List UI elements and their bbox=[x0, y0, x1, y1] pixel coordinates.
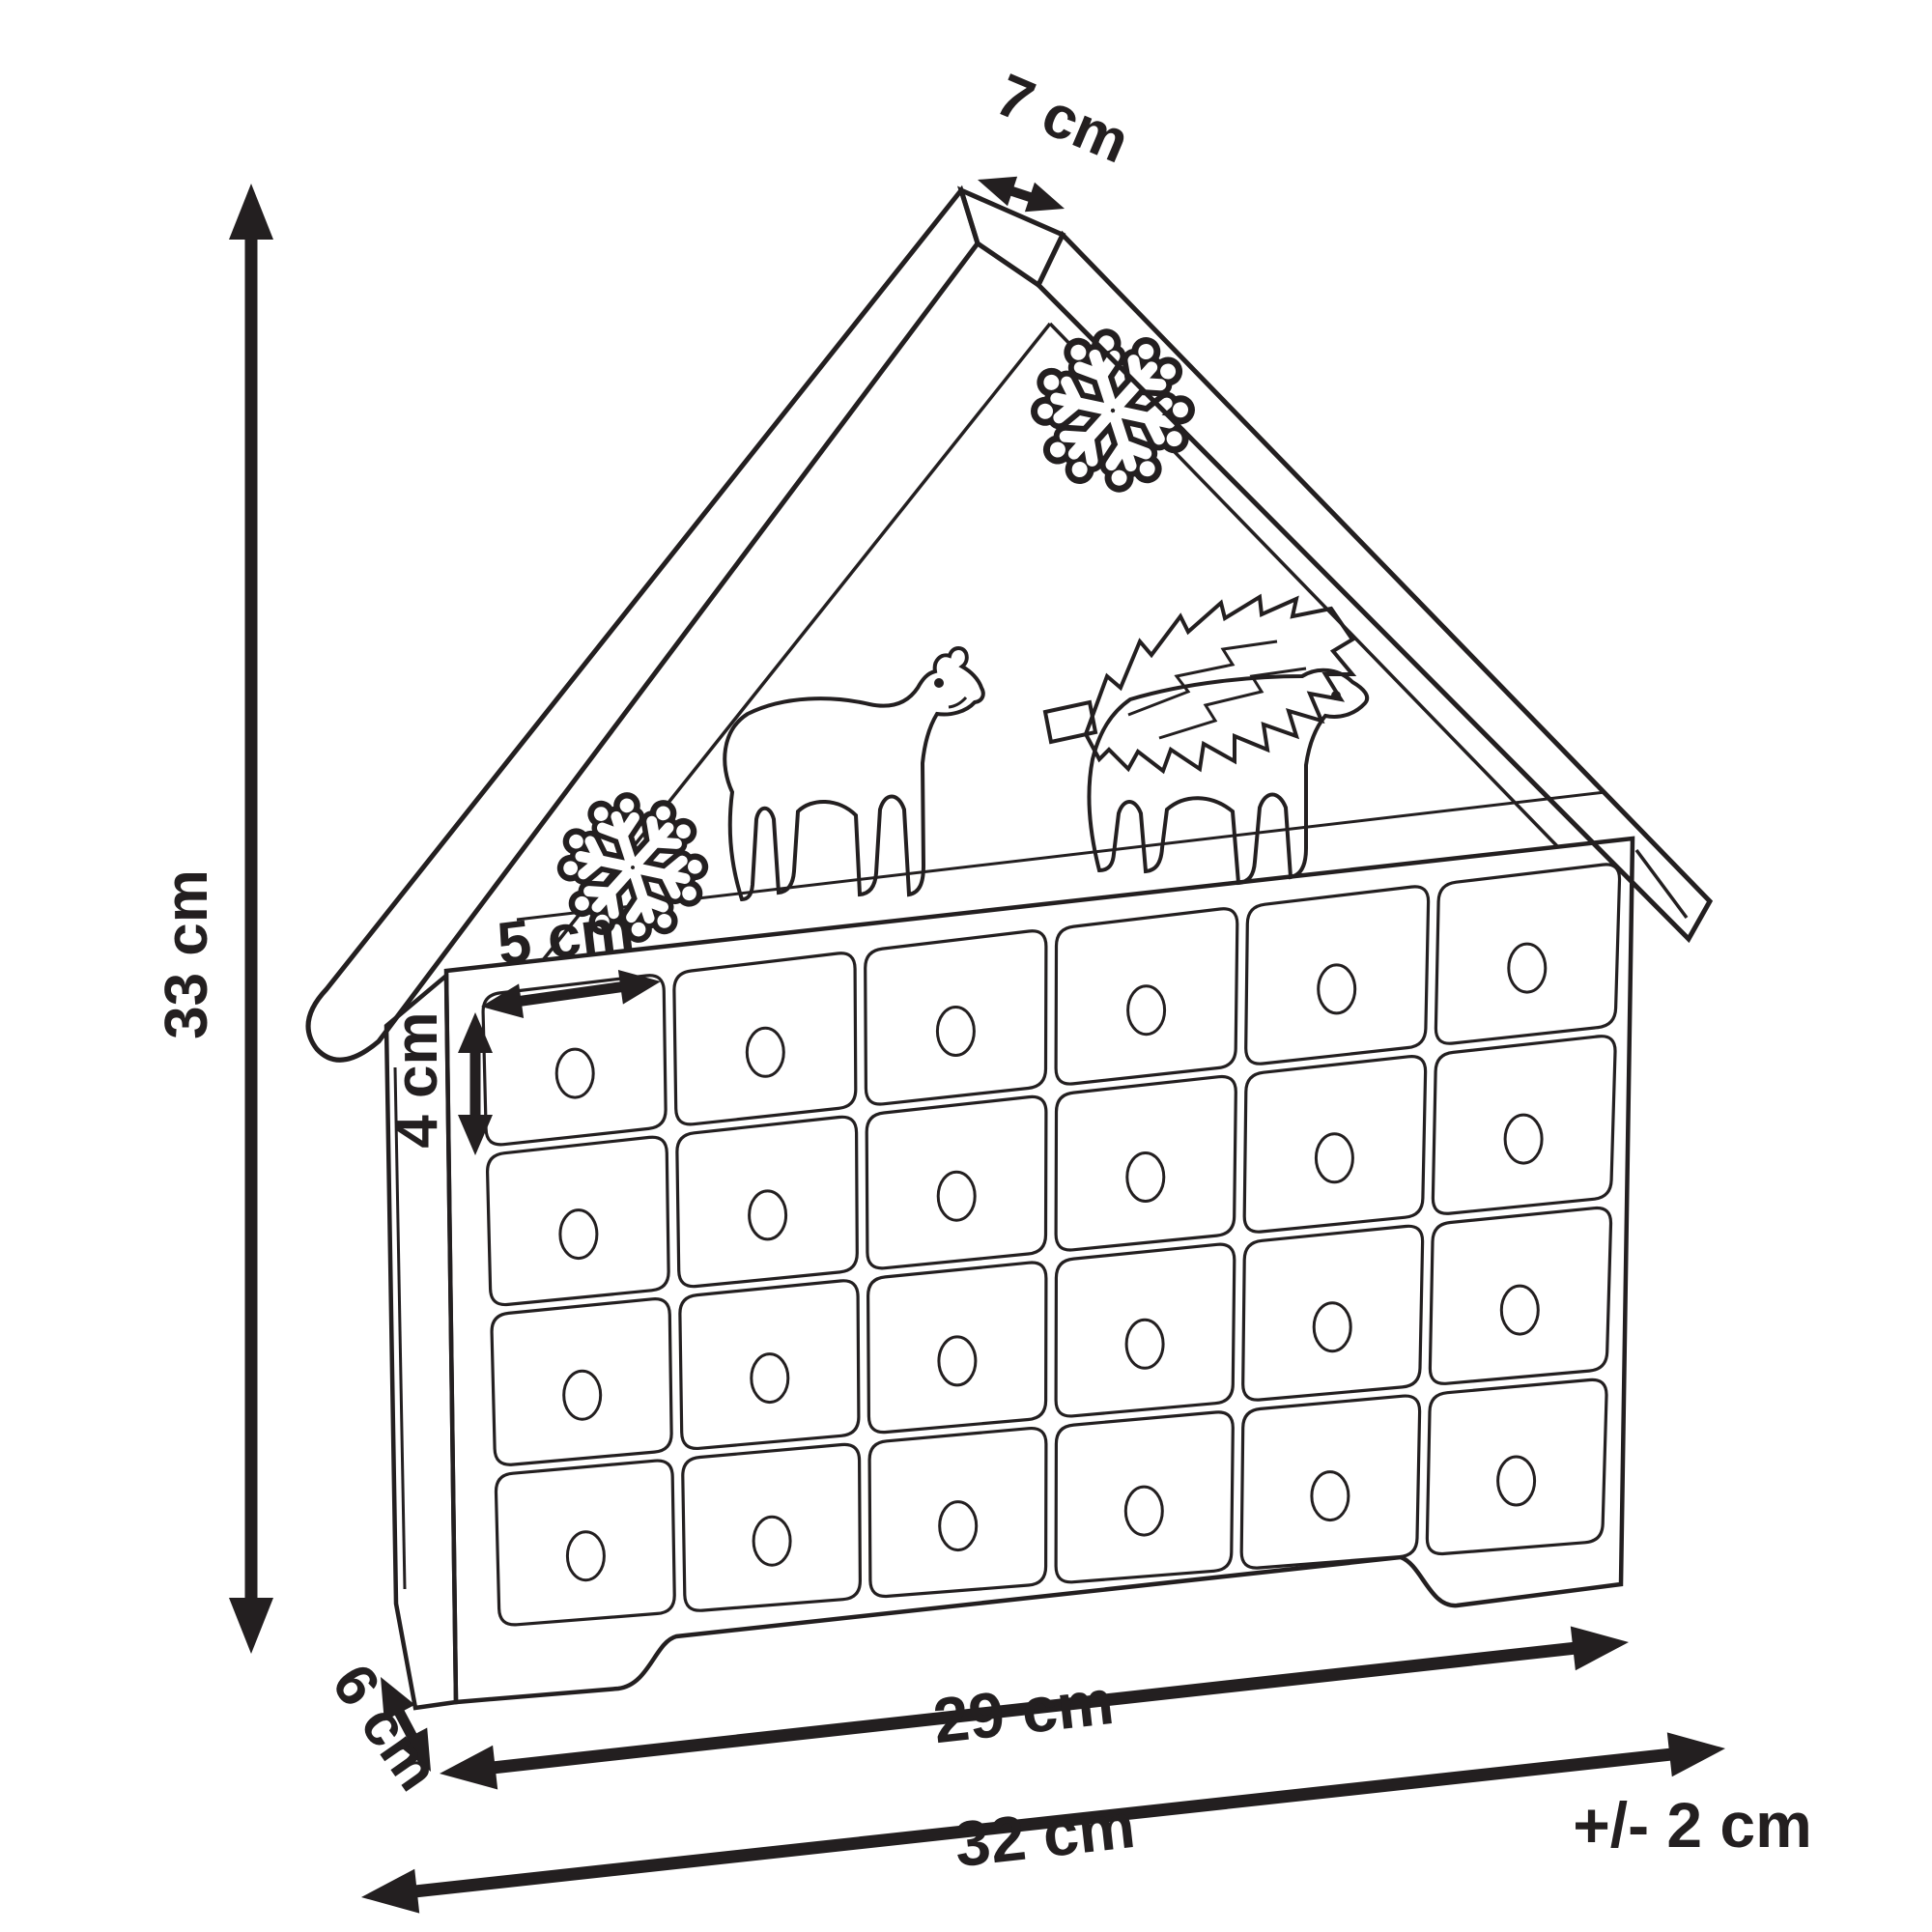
snowflake-top-icon bbox=[1018, 317, 1208, 505]
bear-eye bbox=[934, 678, 944, 688]
fir-tree-branch-lines bbox=[1128, 641, 1306, 738]
drawer-knob bbox=[752, 1354, 788, 1403]
drawer-knob bbox=[1319, 965, 1355, 1013]
drawer-knob bbox=[939, 1337, 976, 1385]
advent-calendar-diagram: 7 cm 33 cm 5 cm 4 cm 6 cm 29 cm 32 cm +/… bbox=[0, 0, 1932, 1932]
drawer-knob bbox=[556, 1049, 593, 1097]
drawer-knob bbox=[1498, 1457, 1535, 1505]
label-height: 33 cm bbox=[154, 869, 220, 1039]
drawer-knob bbox=[1509, 944, 1546, 992]
drawer-grid bbox=[483, 865, 1619, 1625]
drawer-knob bbox=[1125, 1487, 1162, 1535]
drawer-knob bbox=[1316, 1134, 1352, 1182]
bear2-eye bbox=[1331, 691, 1341, 700]
label-depth: 6 cm bbox=[319, 1653, 452, 1803]
dimension-diagram: 7 cm 33 cm 5 cm 4 cm 6 cm 29 cm 32 cm +/… bbox=[0, 0, 1932, 1932]
label-drawer-height: 4 cm bbox=[384, 1011, 450, 1148]
drawer-knob bbox=[1312, 1472, 1349, 1520]
bear-smile bbox=[949, 697, 966, 707]
drawer-knob bbox=[567, 1532, 604, 1580]
drawer-knob bbox=[1127, 1153, 1164, 1202]
arrow-height-33cm bbox=[229, 184, 273, 1654]
arrow-ridge-7cm bbox=[978, 177, 1065, 212]
drawer-knob bbox=[1501, 1286, 1538, 1334]
drawer-knob bbox=[564, 1371, 601, 1419]
drawer-knob bbox=[750, 1191, 786, 1239]
drawer-knob bbox=[1126, 1320, 1163, 1368]
label-ridge-depth: 7 cm bbox=[986, 62, 1138, 177]
drawer-knob bbox=[940, 1502, 977, 1550]
label-total-width: 32 cm bbox=[951, 1789, 1138, 1880]
drawer-knob bbox=[937, 1008, 974, 1056]
roof-eave-underside-line bbox=[1636, 850, 1687, 918]
drawer-knob bbox=[560, 1210, 597, 1259]
drawer-knob bbox=[1314, 1303, 1350, 1351]
drawer-knob bbox=[747, 1028, 783, 1076]
label-tolerance: +/- 2 cm bbox=[1573, 1789, 1812, 1861]
drawer-knob bbox=[1128, 986, 1165, 1035]
label-drawer-width: 5 cm bbox=[494, 895, 638, 979]
drawer-knob bbox=[938, 1172, 975, 1220]
gable-decorations bbox=[545, 317, 1367, 954]
label-inner-width: 29 cm bbox=[929, 1665, 1117, 1756]
drawer-knob bbox=[1505, 1115, 1542, 1163]
drawer-knob bbox=[753, 1517, 790, 1565]
